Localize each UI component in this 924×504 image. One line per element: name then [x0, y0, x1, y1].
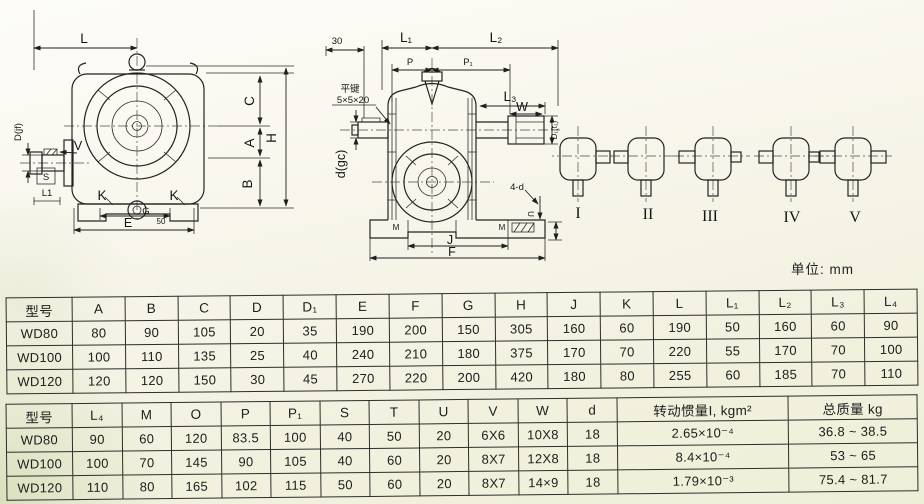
side-input-shaft: [352, 118, 388, 138]
column-header: G: [442, 293, 495, 318]
column-header: L₁: [706, 291, 759, 316]
variant-4: [754, 126, 828, 202]
dim-label-d-gc: d(gc): [334, 150, 348, 178]
row-header-model: WD100: [7, 345, 73, 370]
column-header: M: [122, 403, 172, 428]
table-cell: 180: [548, 364, 601, 389]
table-cell: 110: [73, 475, 123, 500]
table-cell: 170: [548, 340, 601, 365]
table-cell: 36.8 ~ 38.5: [788, 419, 917, 444]
table-cell: 120: [171, 426, 221, 451]
side-view-drawing: 30 L₁ L₂ P P₁ L₃ W D₁(t₁) 平键 5×5×20 d(gc…: [312, 10, 564, 262]
row-header-model: WD100: [7, 452, 73, 477]
table-cell: 100: [865, 337, 918, 362]
front-housing: [72, 54, 204, 204]
column-header: L₄: [864, 289, 917, 314]
table-cell: 160: [759, 314, 812, 339]
table-cell: 40: [320, 448, 370, 473]
row-header-model: WD80: [6, 321, 72, 346]
table-cell: 18: [568, 446, 618, 471]
table-cell: 90: [864, 313, 917, 338]
table-cell: 100: [73, 451, 123, 476]
dim-label-50: 50: [157, 217, 166, 226]
table-cell: 145: [172, 450, 222, 475]
table-cell: 80: [122, 475, 172, 500]
table-cell: 160: [548, 316, 601, 341]
unit-label: 单位: mm: [791, 258, 854, 278]
dim-label-l1-front: L1: [42, 188, 53, 199]
column-header: L₂: [759, 290, 812, 315]
dim-label-l: L: [80, 31, 88, 46]
table-cell: 20: [419, 447, 469, 472]
column-header: B: [125, 296, 178, 321]
column-header: L₄: [72, 403, 122, 428]
table-cell: 220: [653, 339, 706, 364]
column-header: U: [419, 399, 469, 424]
table-cell: 18: [568, 422, 618, 447]
column-header: L: [653, 291, 706, 316]
key-note-line2: 5×5×20: [337, 95, 369, 106]
dim-label-s: S: [43, 172, 49, 183]
table-cell: 105: [178, 320, 231, 345]
dimensions-table-1-wrap: 型号ABCDD₁EFGHJKLL₁L₂L₃L₄WD808090105203519…: [6, 289, 919, 395]
dimensions-table-primary: 型号ABCDD₁EFGHJKLL₁L₂L₃L₄WD808090105203519…: [6, 289, 919, 395]
table-cell: 70: [812, 338, 865, 363]
table-cell: 70: [812, 362, 865, 387]
column-header: O: [171, 402, 221, 427]
dim-label-30: 30: [332, 36, 343, 47]
variant-label-5: V: [849, 209, 861, 226]
front-view-svg: L C A B H D(jf) V S L1 K K G 50 E: [8, 10, 300, 262]
table-cell: 83.5: [221, 426, 271, 451]
table-cell: 165: [172, 474, 222, 499]
column-header: D₁: [283, 295, 336, 320]
front-base: [78, 197, 198, 221]
table-cell: 45: [284, 367, 337, 392]
dim-label-k-right: K: [169, 188, 178, 203]
front-view-drawing: L C A B H D(jf) V S L1 K K G 50 E: [8, 10, 300, 262]
table-cell: 10X8: [518, 422, 568, 447]
variant-label-4: IV: [784, 209, 801, 226]
side-view-svg: 30 L₁ L₂ P P₁ L₃ W D₁(t₁) 平键 5×5×20 d(gc…: [312, 10, 564, 262]
table-cell: 375: [495, 341, 548, 366]
table-cell: 40: [284, 343, 337, 368]
column-header: J: [547, 292, 600, 317]
column-header: S: [320, 400, 370, 425]
table-cell: 35: [284, 319, 337, 344]
variant-3: [674, 126, 750, 202]
mounting-variants-svg: I II III IV V: [552, 122, 922, 227]
table-cell: 60: [812, 314, 865, 339]
column-header: E: [336, 294, 389, 319]
table-cell: 200: [442, 365, 495, 390]
table-cell: 55: [706, 339, 759, 364]
table-cell: 40: [320, 424, 370, 449]
table-cell: 75.4 ~ 81.7: [789, 467, 918, 492]
table-cell: 70: [601, 340, 654, 365]
row-header-model: WD120: [7, 476, 73, 501]
table-cell: 180: [442, 341, 495, 366]
column-header: L₃: [811, 290, 864, 315]
table-cell: 14×9: [519, 470, 569, 495]
table-cell: 270: [337, 366, 390, 391]
table-cell: 20: [419, 471, 469, 496]
column-header: W: [518, 398, 568, 423]
dim-label-l3: L₃: [503, 89, 516, 104]
column-header: V: [468, 399, 518, 424]
variant-label-2: II: [643, 206, 654, 223]
table-cell: 8X7: [469, 447, 519, 472]
table-cell: 90: [125, 320, 178, 345]
dim-label-f: F: [448, 245, 456, 259]
table-cell: 60: [600, 316, 653, 341]
table-cell: 120: [126, 368, 179, 393]
table-cell: 120: [73, 369, 126, 394]
dim-label-u: U: [526, 211, 535, 217]
table-cell: 190: [653, 315, 706, 340]
side-dimensions: [326, 40, 562, 261]
table-cell: 240: [337, 342, 390, 367]
table-cell: 100: [270, 425, 320, 450]
variant-2: [610, 126, 680, 202]
column-header: T: [369, 400, 419, 425]
table-cell: 100: [73, 345, 126, 370]
dim-label-l1-side: L₁: [400, 30, 413, 45]
table-cell: 18: [568, 470, 618, 495]
dim-label-w: W: [516, 100, 528, 114]
dim-label-b: B: [240, 179, 255, 188]
table-cell: 8.4×10⁻⁴: [617, 444, 788, 470]
table-cell: 170: [759, 338, 812, 363]
dim-label-g: G: [142, 206, 149, 217]
table-cell: 50: [320, 472, 370, 497]
column-header: A: [72, 297, 125, 322]
table-cell: 20: [231, 319, 284, 344]
table-cell: 60: [122, 427, 172, 452]
dimensions-table-2-wrap: 型号L₄MOPP₁STUVWd转动惯量I, kgm²总质量 kgWD809060…: [6, 394, 919, 501]
table-cell: 2.65×10⁻⁴: [617, 420, 788, 446]
dim-label-p: P: [407, 57, 413, 68]
column-header: K: [600, 292, 653, 317]
table-cell: 12X8: [518, 446, 568, 471]
variant-label-3: III: [702, 208, 718, 225]
column-header: 转动惯量I, kgm²: [617, 396, 788, 422]
variant-1: [552, 126, 612, 202]
column-header: 型号: [6, 297, 72, 322]
table-cell: 1.79×10⁻³: [618, 468, 789, 494]
table-cell: 50: [706, 315, 759, 340]
column-header: F: [389, 294, 442, 319]
dimensions-table-secondary: 型号L₄MOPP₁STUVWd转动惯量I, kgm²总质量 kgWD809060…: [6, 394, 919, 501]
table-cell: 190: [336, 318, 389, 343]
table-cell: 110: [125, 344, 178, 369]
table-cell: 115: [271, 473, 321, 498]
dim-label-v: V: [74, 139, 83, 153]
table-cell: 60: [370, 472, 420, 497]
column-header: 总质量 kg: [788, 395, 917, 420]
table-cell: 60: [706, 363, 759, 388]
table-cell: 220: [390, 366, 443, 391]
table-cell: 25: [231, 343, 284, 368]
dim-label-h: H: [264, 133, 279, 143]
dim-label-d-jf: D(jf): [13, 123, 24, 141]
column-header: P: [221, 402, 271, 427]
table-cell: 135: [178, 344, 231, 369]
dim-label-4d: 4-d: [510, 182, 524, 193]
table-cell: 105: [271, 449, 321, 474]
dim-label-p1: P₁: [463, 57, 473, 68]
table-cell: 53 ~ 65: [788, 443, 917, 468]
dim-label-a: A: [242, 138, 257, 147]
table-cell: 255: [654, 363, 707, 388]
row-header-model: WD120: [7, 369, 73, 394]
table-cell: 60: [370, 448, 420, 473]
table-cell: 80: [72, 321, 125, 346]
dim-label-m-left: M: [393, 223, 400, 232]
table-cell: 150: [178, 368, 231, 393]
key-note-line1: 平键: [340, 83, 360, 95]
table-cell: 90: [72, 427, 122, 452]
table-cell: 20: [419, 423, 469, 448]
front-dimensions: [34, 10, 294, 234]
dim-label-l2: L₂: [490, 30, 503, 45]
table-cell: 80: [601, 364, 654, 389]
table-cell: 50: [369, 424, 419, 449]
variant-label-1: I: [575, 205, 580, 222]
table-cell: 305: [495, 317, 548, 342]
table-cell: 30: [231, 367, 284, 392]
table-cell: 110: [865, 361, 918, 386]
table-cell: 70: [122, 451, 172, 476]
table-cell: 90: [221, 450, 271, 475]
table-cell: 8X7: [469, 471, 519, 496]
table-cell: 102: [221, 474, 271, 499]
column-header: 型号: [6, 404, 72, 429]
scanned-catalog-page: { "page": { "unit_label": "单位: mm" }, "f…: [0, 0, 924, 504]
row-header-model: WD80: [6, 428, 72, 453]
table-cell: 6X6: [468, 423, 518, 448]
column-header: d: [567, 398, 617, 423]
column-header: D: [230, 295, 283, 320]
table-cell: 150: [442, 317, 495, 342]
mounting-variants: I II III IV V: [552, 122, 922, 227]
column-header: P₁: [270, 401, 320, 426]
table-cell: 200: [389, 318, 442, 343]
column-header: C: [178, 296, 231, 321]
table-cell: 185: [759, 362, 812, 387]
variant-5: [814, 126, 892, 202]
dim-label-c: C: [242, 96, 257, 106]
table-cell: 210: [389, 342, 442, 367]
dim-label-m-right: M: [499, 223, 506, 232]
dim-label-e: E: [124, 216, 132, 230]
table-cell: 420: [495, 365, 548, 390]
dim-label-k-left: K: [97, 188, 106, 203]
column-header: H: [495, 293, 548, 318]
